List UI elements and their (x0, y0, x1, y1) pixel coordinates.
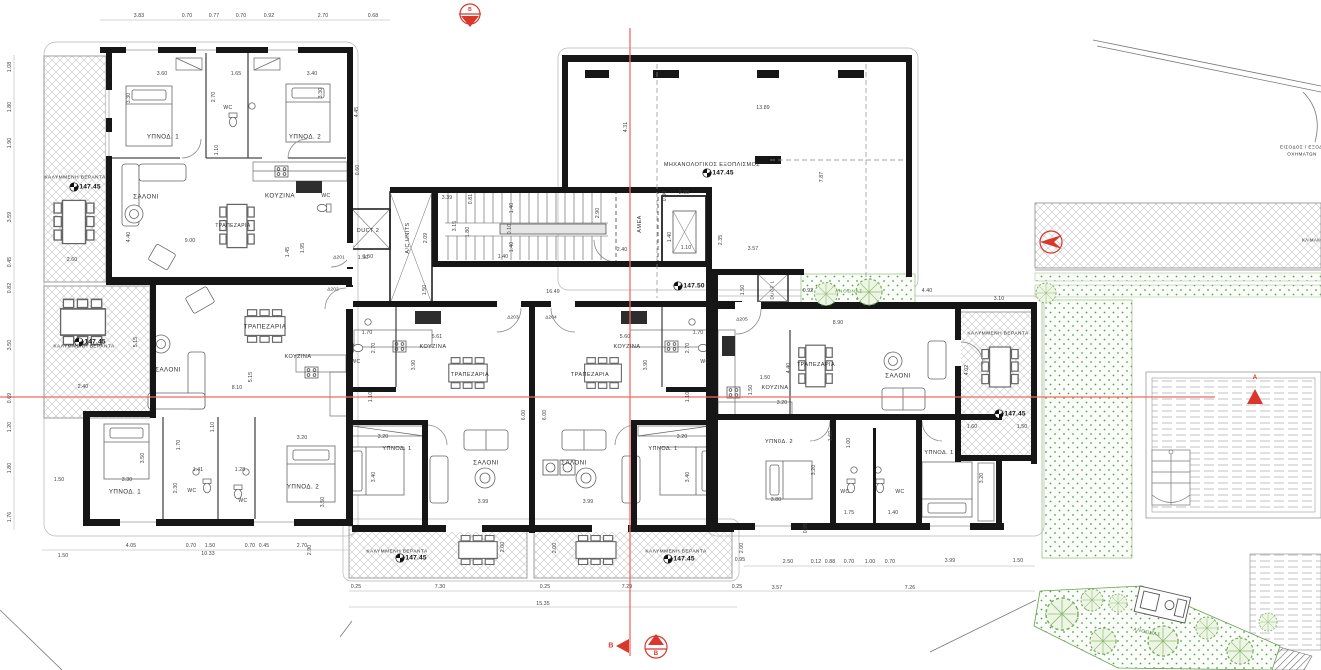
floor-plan-canvas: ΥΠΝΟΔ. 1ΥΠΝΟΔ. 2WCΣΑΛΟΝΙΚΟΥΖΙΝΑΤΡΑΠΕΖΑΡΙ… (0, 0, 1321, 670)
stair-treads-lower (448, 236, 601, 260)
pool-terrace (1146, 372, 1321, 518)
bed (922, 462, 972, 517)
section-marker-B-bottom (616, 634, 667, 658)
driveway-band (1035, 203, 1321, 297)
sofa (430, 430, 508, 503)
verandas (44, 56, 1036, 578)
sofa (882, 341, 946, 410)
veranda-table (61, 299, 106, 344)
dining-table (245, 310, 285, 343)
stair-core (352, 190, 788, 304)
veranda-201 (44, 56, 106, 282)
washers (543, 460, 575, 475)
plan-linework (0, 0, 1321, 670)
veranda-table (459, 536, 497, 565)
garden-strip-right (1042, 300, 1132, 558)
bed (104, 424, 149, 479)
bed (126, 86, 172, 146)
round-table (475, 468, 495, 488)
pool-ladder (1152, 450, 1190, 505)
dining-table (449, 358, 487, 389)
dining-table (585, 358, 622, 389)
round-table (884, 352, 902, 370)
armchair (185, 286, 215, 314)
stair-treads-upper (448, 191, 601, 223)
bed (286, 84, 330, 142)
elevator-shaft (662, 196, 706, 264)
dining-table (799, 345, 832, 387)
veranda-203 (349, 526, 527, 578)
bed (348, 447, 404, 495)
bed (766, 461, 812, 499)
armchair (148, 244, 176, 271)
section-marker-B-top (459, 4, 481, 27)
veranda-table (982, 347, 1018, 387)
amea-lift (616, 190, 658, 262)
veranda-table (576, 536, 616, 565)
round-table (576, 468, 596, 488)
veranda-204 (534, 526, 732, 578)
dining-table (220, 204, 254, 247)
bed (287, 446, 335, 502)
sofa (148, 352, 205, 409)
veranda-table (54, 200, 94, 243)
stair-stringer (500, 224, 606, 234)
round-table (125, 205, 143, 223)
